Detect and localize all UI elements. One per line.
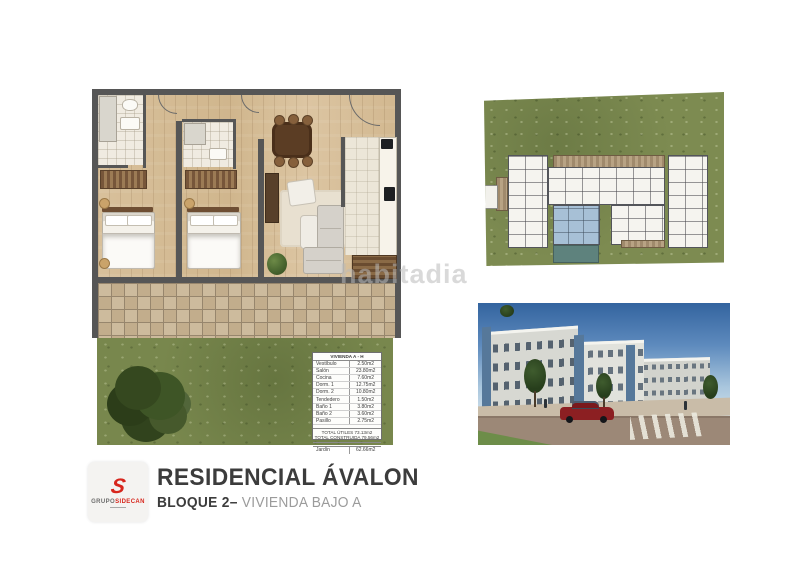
pedestrian-1 [544,399,547,408]
street-tree-1-trunk [534,391,536,407]
subtitle-block-label: BLOQUE 2– [157,495,238,511]
logo-brand-name: GRUPOSIDECAN [91,499,145,505]
table-row: Dorm. 2 10.80m2 [313,389,381,396]
area-table-header: VIVIENDA A - H [313,353,381,361]
total-construida: TOTAL CONSTRUIDA 79.56m2 [313,435,381,441]
table-row: Pasillo 2.75m2 [313,418,381,425]
subtitle-unit-label: VIVIENDA BAJO A [238,495,362,511]
bed-1 [102,212,155,269]
sofa-horizontal [303,247,344,274]
siteplan-panel [484,92,724,266]
dining-table [272,122,312,158]
developer-logo: S GRUPOSIDECAN [88,462,148,522]
stool-1 [99,198,110,209]
door-arc-entrance [349,95,380,126]
dining-chair [288,114,299,125]
plant [267,253,287,275]
wall-bath1-right [143,95,146,168]
dining-chair [274,156,285,167]
oven [384,187,395,201]
facade-accent-1 [574,335,584,410]
render-panel [478,303,730,445]
facade-accent-2 [626,345,635,409]
table-row: Baño 2 3.60m2 [313,411,381,418]
garden-tree [115,366,161,410]
title-block: RESIDENCIAL ÁVALON BLOQUE 2– VIVIENDA BA… [157,464,433,511]
crosswalk [630,412,702,440]
table-row: Vestíbulo 2.50m2 [313,361,381,368]
table-row: Tendedero 1.50m2 [313,396,381,403]
cooktop [381,139,393,149]
wardrobe-1 [100,170,147,189]
logo-divider [110,507,126,508]
wall-bath1-bottom [98,165,128,168]
sink-2 [209,148,227,160]
building-center-band [548,167,665,205]
door-arc-bedroom1 [158,95,177,114]
building-left-wing [508,155,548,248]
terrace [92,283,401,338]
stool-3 [184,198,195,209]
highlighted-unit [553,205,600,245]
shower-1 [99,96,117,142]
table-row: Salón 23.80m2 [313,368,381,375]
walkway-lower [621,240,665,248]
stool-2 [99,258,110,269]
street-tree-1 [524,359,546,393]
page-subtitle: BLOQUE 2– VIVIENDA BAJO A [157,495,419,511]
jardin-row: Jardín 62.66m2 [313,446,381,454]
shower-2 [184,123,206,145]
siteplan-notch [484,185,498,209]
dining-chair [288,157,299,168]
bathroom-2 [183,122,233,167]
page-title: RESIDENCIAL ÁVALON [157,464,419,492]
palm-top [500,305,514,317]
table-row: Cocina 7.60m2 [313,375,381,382]
wall-bath2-right [233,119,236,169]
toilet-1 [122,99,138,111]
street-tree-3 [703,375,718,399]
bed-2-duvet [187,233,241,269]
pedestrian-2 [684,401,687,410]
apartment-plan [92,89,401,283]
sink-1 [120,117,140,130]
building-right-wing [668,155,708,248]
car-wheel [566,416,573,423]
dining-chair [302,156,313,167]
bed-2-pillow [190,215,215,226]
door-arc-bedroom2 [241,95,259,113]
area-table: VIVIENDA A - H Vestíbulo 2.50m2 Salón 23… [312,352,382,440]
logo-brand-gray: GRUPO [91,499,115,505]
wall-bed2-living [258,139,264,277]
red-car [560,407,614,420]
table-row: Dorm. 1 12.75m2 [313,382,381,389]
bed-1-pillow [127,215,152,226]
unit-terrace-pool [553,245,599,263]
street-tree-2 [596,373,612,399]
facade-accent-3 [482,327,491,408]
flyer-sheet: { "colors": { "logo_red": "#d7261d", "ti… [0,0,800,566]
bed-2-pillow [213,215,238,226]
tv-cabinet [265,173,279,223]
armchair [286,178,316,207]
watermark-text: habitadia [340,259,468,290]
dining-chair [274,115,285,126]
car-wheel [600,416,607,423]
car-cabin [572,401,599,409]
bed-2 [187,212,241,269]
dining-chair [302,115,313,126]
building-center-lower [611,205,665,245]
area-totals: TOTAL ÚTILES 73.13m2 TOTAL CONSTRUIDA 79… [313,428,381,443]
wardrobe-2 [185,170,237,189]
logo-brand-red: SIDECAN [115,499,145,505]
logo-s-icon: S [109,477,127,497]
kitchen-floor [345,137,381,255]
wall-bed1-bed2 [176,121,182,277]
bathroom-1 [98,95,143,165]
table-row: Baño 1 3.80m2 [313,404,381,411]
